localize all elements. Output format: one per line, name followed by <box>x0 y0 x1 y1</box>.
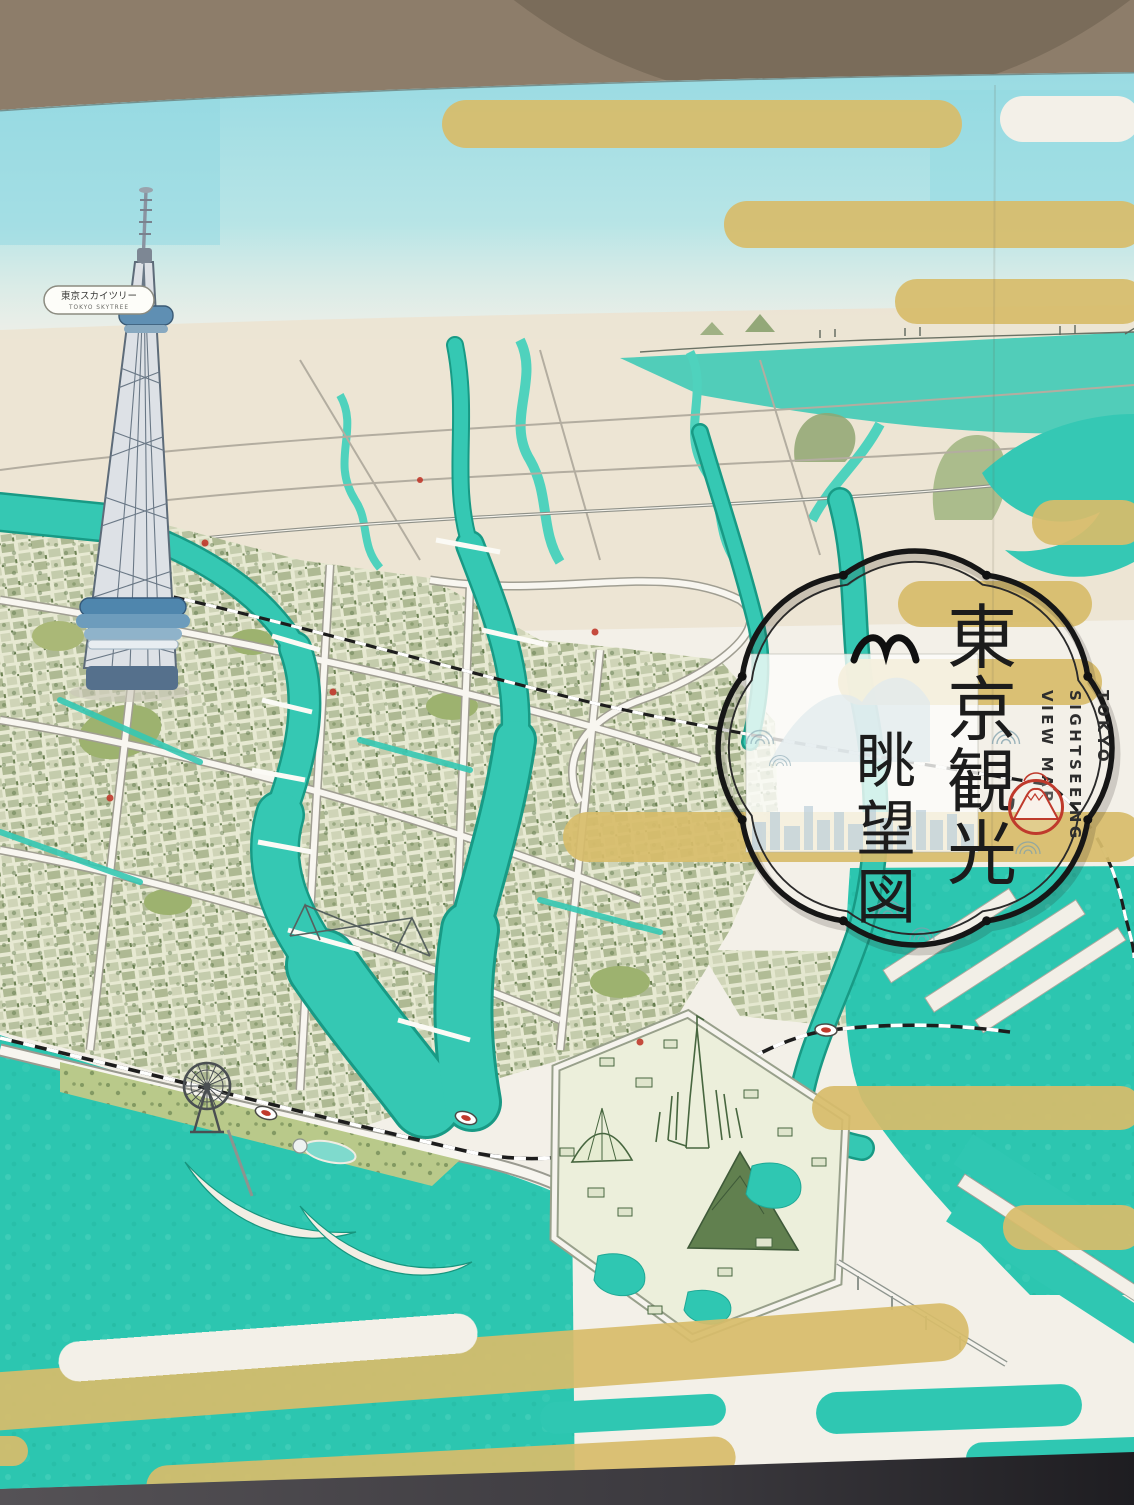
skytree-label-en: TOKYO SKYTREE <box>68 305 129 311</box>
title-char: 望 <box>856 795 916 865</box>
title-char: 京 <box>947 669 1017 751</box>
photo-of-tokyo-sightseeing-view-map: 東京スカイツリー TOKYO SKYTREE <box>0 0 1134 1505</box>
glass-dome-icon <box>293 1139 307 1153</box>
subtitle-word: TOKYO <box>1094 690 1112 765</box>
skytree-lower-deck <box>80 598 186 616</box>
skytree-label-jp: 東京スカイツリー <box>61 290 137 302</box>
title-char: 図 <box>856 863 916 933</box>
map-photo-canvas: 東京スカイツリー TOKYO SKYTREE <box>0 0 1134 1505</box>
title-char: 光 <box>947 813 1017 895</box>
white-pill <box>1000 96 1134 142</box>
skytree-label: 東京スカイツリー TOKYO SKYTREE <box>44 286 154 314</box>
title-char: 観 <box>947 741 1017 823</box>
title-char: 東 <box>947 597 1017 679</box>
subtitle-word: SIGHTSEEING <box>1066 690 1084 842</box>
title-char: 眺 <box>856 727 916 797</box>
